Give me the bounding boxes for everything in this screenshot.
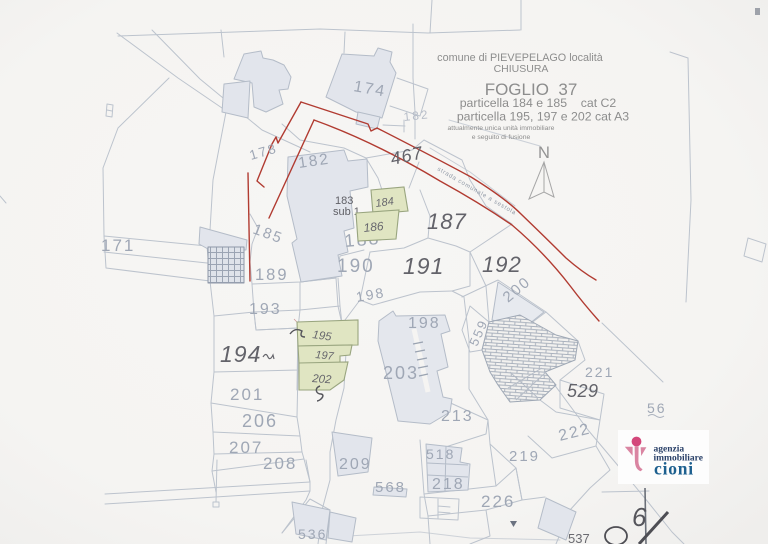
svg-text:194: 194: [220, 341, 261, 367]
svg-text:537: 537: [568, 531, 590, 544]
svg-text:536: 536: [298, 526, 327, 542]
svg-text:518: 518: [426, 446, 455, 462]
svg-text:CHIUSURA: CHIUSURA: [494, 63, 549, 75]
svg-text:203: 203: [383, 363, 419, 383]
svg-text:221: 221: [585, 364, 614, 380]
svg-text:193: 193: [249, 301, 282, 318]
svg-text:190: 190: [337, 256, 375, 277]
svg-text:198: 198: [408, 315, 441, 332]
svg-text:206: 206: [242, 411, 278, 431]
svg-text:202: 202: [311, 373, 333, 386]
svg-text:particella 195, 197 e 202 cat: particella 195, 197 e 202 cat A3: [457, 110, 629, 124]
svg-text:219: 219: [509, 448, 540, 465]
svg-text:226: 226: [481, 492, 515, 511]
svg-text:213: 213: [441, 408, 474, 425]
svg-text:attualmente unica unità immobi: attualmente unica unità immobiliare: [448, 125, 555, 132]
svg-text:182: 182: [403, 107, 430, 124]
svg-text:186: 186: [363, 219, 385, 235]
svg-text:192: 192: [482, 252, 522, 277]
svg-text:197: 197: [315, 349, 335, 363]
svg-text:209: 209: [339, 456, 372, 473]
svg-text:529: 529: [567, 381, 599, 401]
svg-text:187: 187: [427, 209, 467, 234]
svg-text:cioni: cioni: [654, 459, 694, 479]
svg-text:N: N: [538, 144, 550, 162]
svg-text:171: 171: [101, 236, 135, 255]
svg-text:191: 191: [403, 253, 444, 279]
svg-text:207: 207: [229, 438, 263, 457]
svg-text:218: 218: [432, 476, 465, 493]
svg-text:6: 6: [632, 502, 647, 532]
svg-text:568: 568: [375, 479, 406, 496]
svg-text:201: 201: [230, 385, 264, 404]
svg-text:184: 184: [375, 196, 395, 210]
svg-text:e seguito di fusione: e seguito di fusione: [472, 134, 531, 141]
svg-text:189: 189: [255, 266, 289, 284]
svg-text:56: 56: [647, 400, 667, 416]
svg-text:208: 208: [263, 454, 297, 473]
svg-text:particella 184 e 185 cat C2: particella 184 e 185 cat C2: [460, 96, 617, 110]
